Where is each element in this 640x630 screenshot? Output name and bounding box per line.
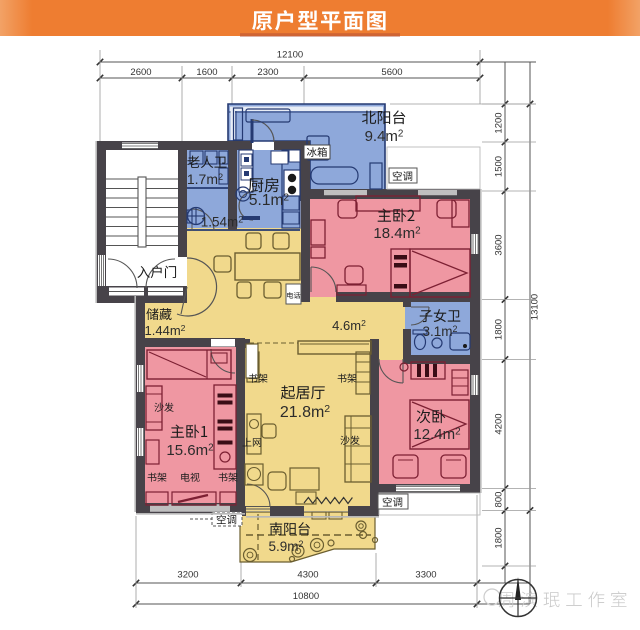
svg-text:3200: 3200 — [177, 570, 198, 581]
svg-text:12.4m2: 12.4m2 — [413, 426, 460, 443]
svg-text:5.1m2: 5.1m2 — [249, 192, 289, 209]
svg-text:1800: 1800 — [494, 319, 505, 340]
svg-text:800: 800 — [494, 492, 505, 508]
svg-text:4.6m2: 4.6m2 — [332, 318, 366, 333]
svg-text:5.9m2: 5.9m2 — [269, 539, 304, 554]
svg-text:4300: 4300 — [297, 570, 318, 581]
svg-text:13100: 13100 — [530, 294, 541, 320]
svg-text:10800: 10800 — [293, 591, 319, 602]
svg-text:9.4m2: 9.4m2 — [365, 128, 404, 145]
svg-text:4200: 4200 — [494, 413, 505, 434]
svg-text:1200: 1200 — [494, 112, 505, 133]
svg-text:3600: 3600 — [494, 234, 505, 255]
svg-text:3.1m2: 3.1m2 — [423, 324, 458, 339]
svg-text:12100: 12100 — [277, 50, 303, 61]
svg-text:1600: 1600 — [196, 67, 217, 78]
svg-text:18.4m2: 18.4m2 — [373, 225, 420, 242]
svg-text:1.54m2: 1.54m2 — [201, 214, 244, 229]
svg-text:21.8m2: 21.8m2 — [280, 403, 330, 421]
svg-text:3300: 3300 — [415, 570, 436, 581]
svg-text:1500: 1500 — [494, 156, 505, 177]
svg-text:1.44m2: 1.44m2 — [145, 323, 186, 338]
svg-text:15.6m2: 15.6m2 — [166, 442, 213, 459]
svg-text:2600: 2600 — [130, 67, 151, 78]
svg-text:1800: 1800 — [494, 527, 505, 548]
svg-text:1.7m2: 1.7m2 — [187, 171, 223, 187]
svg-text:2300: 2300 — [257, 67, 278, 78]
svg-text:5600: 5600 — [381, 67, 402, 78]
